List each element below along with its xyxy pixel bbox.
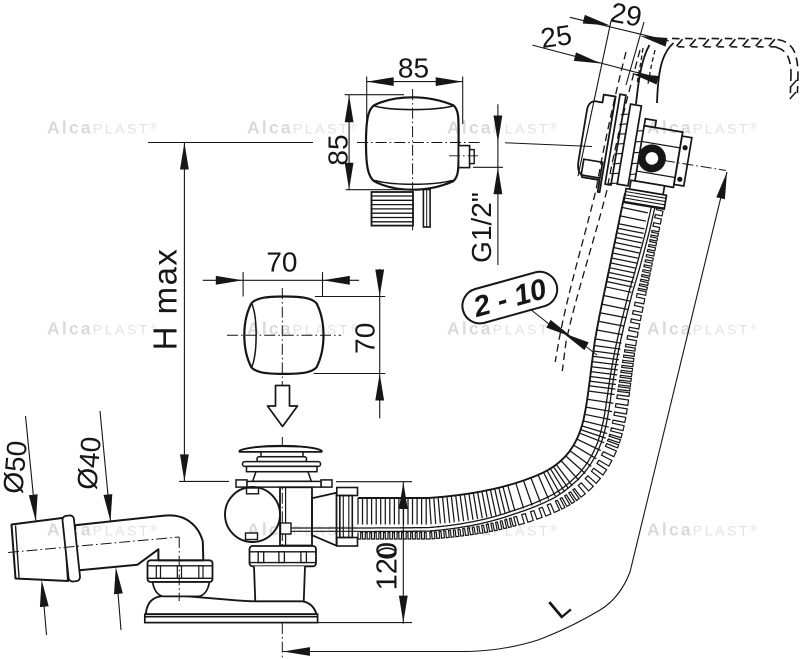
svg-text:25: 25	[539, 19, 574, 54]
svg-text:70: 70	[350, 323, 381, 354]
svg-text:85: 85	[398, 53, 429, 84]
svg-text:AlcaPLAST®: AlcaPLAST®	[447, 319, 559, 339]
svg-text:AlcaPLAST®: AlcaPLAST®	[247, 520, 359, 540]
svg-text:70: 70	[266, 247, 297, 278]
svg-text:AlcaPLAST®: AlcaPLAST®	[447, 118, 559, 138]
svg-text:G1/2": G1/2"	[466, 192, 497, 263]
svg-text:AlcaPLAST®: AlcaPLAST®	[647, 118, 759, 138]
svg-text:Ø40: Ø40	[71, 435, 106, 490]
svg-text:AlcaPLAST®: AlcaPLAST®	[47, 118, 159, 138]
svg-text:120: 120	[372, 542, 404, 590]
svg-text:AlcaPLAST®: AlcaPLAST®	[647, 520, 759, 540]
svg-text:Ø50: Ø50	[0, 439, 33, 494]
svg-text:AlcaPLAST®: AlcaPLAST®	[47, 319, 159, 339]
svg-text:H max: H max	[147, 248, 184, 351]
svg-text:29: 29	[608, 0, 644, 33]
svg-text:AlcaPLAST®: AlcaPLAST®	[647, 319, 759, 339]
